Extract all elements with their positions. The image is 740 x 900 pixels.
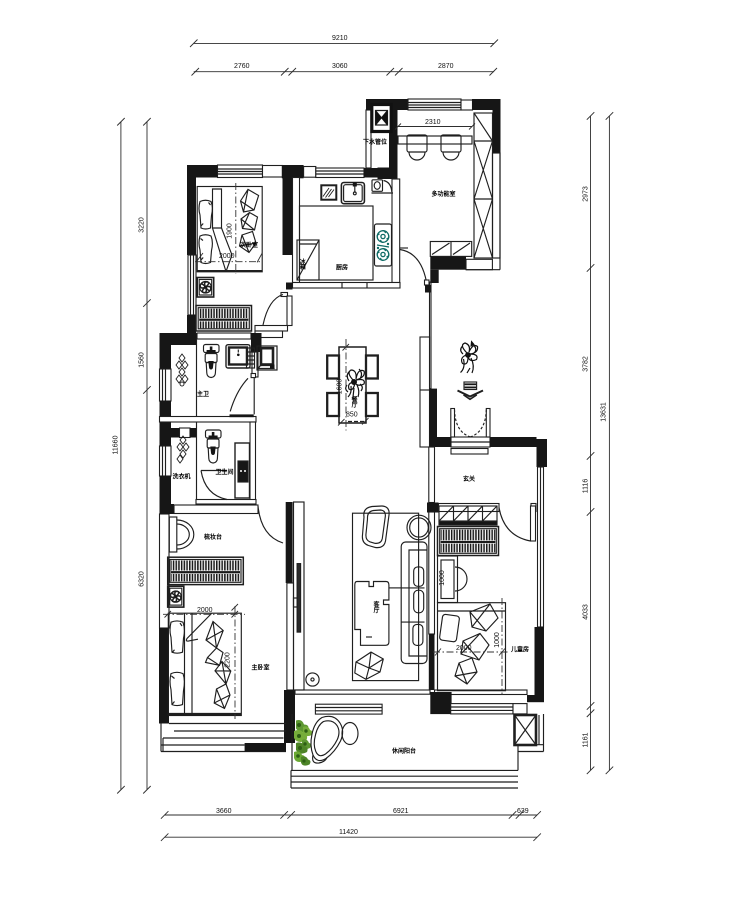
svg-text:1900: 1900 [227, 223, 234, 239]
svg-text:2000: 2000 [197, 607, 213, 614]
svg-text:2000: 2000 [456, 645, 472, 652]
svg-text:11420: 11420 [339, 829, 358, 836]
svg-text:1000: 1000 [439, 570, 446, 586]
svg-text:3782: 3782 [582, 356, 589, 372]
svg-text:下水管位: 下水管位 [363, 138, 387, 146]
svg-text:次卧室: 次卧室 [240, 241, 258, 249]
svg-text:3220: 3220 [139, 217, 146, 233]
svg-text:3660: 3660 [216, 808, 232, 815]
svg-text:2973: 2973 [582, 186, 589, 202]
svg-text:9210: 9210 [332, 35, 348, 42]
svg-text:箱: 箱 [300, 263, 306, 271]
svg-text:6921: 6921 [393, 808, 409, 815]
svg-text:休闲阳台: 休闲阳台 [391, 747, 416, 755]
svg-text:2870: 2870 [438, 63, 454, 70]
svg-text:13631: 13631 [601, 402, 608, 422]
svg-text:850: 850 [346, 412, 358, 419]
svg-text:6320: 6320 [139, 571, 146, 587]
svg-text:梳妆台: 梳妆台 [203, 533, 222, 541]
svg-text:儿童房: 儿童房 [510, 646, 529, 654]
svg-text:主卧室: 主卧室 [252, 664, 270, 672]
svg-text:11660: 11660 [113, 435, 120, 454]
svg-text:639: 639 [517, 808, 529, 815]
svg-text:1161: 1161 [582, 732, 589, 747]
svg-text:厅: 厅 [352, 401, 358, 409]
svg-text:1600: 1600 [337, 379, 344, 395]
svg-text:4033: 4033 [582, 604, 589, 620]
svg-text:厨房: 厨房 [336, 264, 348, 272]
svg-text:2760: 2760 [234, 63, 250, 70]
svg-text:洗衣机: 洗衣机 [173, 473, 191, 481]
svg-text:多功能室: 多功能室 [432, 190, 456, 198]
svg-text:3060: 3060 [332, 63, 348, 70]
svg-text:2200: 2200 [225, 652, 232, 668]
svg-text:2000: 2000 [219, 253, 235, 260]
svg-text:厅: 厅 [374, 607, 380, 615]
svg-text:1000: 1000 [494, 632, 501, 648]
svg-text:客: 客 [373, 601, 381, 609]
svg-text:玄关: 玄关 [463, 475, 475, 483]
svg-text:2310: 2310 [425, 119, 441, 126]
svg-text:卫生间: 卫生间 [216, 468, 234, 476]
svg-text:主卫: 主卫 [197, 390, 209, 398]
svg-text:1560: 1560 [139, 352, 146, 368]
svg-text:1116: 1116 [582, 479, 589, 494]
